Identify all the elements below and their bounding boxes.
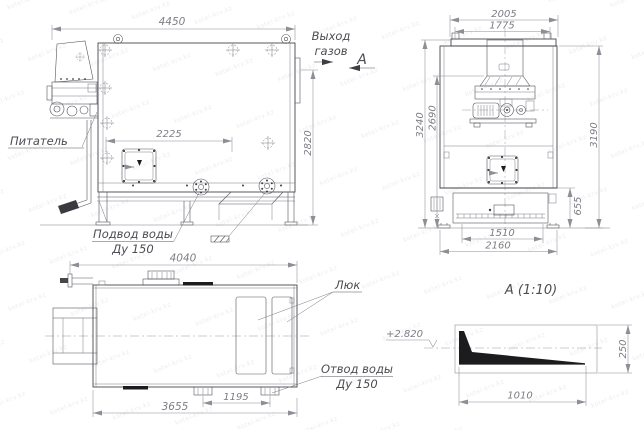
svg-text:655: 655 [573, 196, 584, 215]
svg-text:2160: 2160 [485, 241, 510, 252]
svg-text:250: 250 [618, 339, 629, 358]
svg-text:А: А [356, 52, 367, 68]
svg-text:3655: 3655 [162, 401, 189, 413]
svg-text:2005: 2005 [491, 9, 516, 20]
svg-text:Ду 150: Ду 150 [111, 242, 153, 256]
svg-text:2820: 2820 [303, 130, 314, 155]
technical-drawing-svg: kotel-krv.kz kotel-krv.kz [0, 0, 644, 430]
svg-text:2225: 2225 [156, 129, 181, 140]
svg-text:4450: 4450 [159, 16, 186, 28]
svg-text:2690: 2690 [428, 105, 439, 130]
svg-text:3190: 3190 [589, 122, 600, 147]
detail-title: А (1:10) [504, 283, 557, 298]
svg-text:1510: 1510 [489, 228, 514, 239]
svg-text:Ду 150: Ду 150 [335, 377, 377, 391]
drawing-canvas: kotel-krv.kz kotel-krv.kz [0, 0, 644, 430]
gas-outlet-label: Выход газов [312, 29, 351, 62]
svg-text:Люк: Люк [334, 278, 360, 292]
svg-text:3240: 3240 [415, 112, 426, 137]
svg-text:1010: 1010 [507, 391, 532, 402]
svg-text:+2.820: +2.820 [386, 329, 423, 340]
svg-text:газов: газов [314, 44, 347, 58]
svg-text:Выход: Выход [312, 29, 351, 43]
svg-text:1775: 1775 [489, 21, 514, 32]
svg-text:Подвод воды: Подвод воды [93, 227, 173, 241]
svg-text:Отвод воды: Отвод воды [321, 362, 393, 376]
svg-text:4040: 4040 [170, 253, 197, 265]
feeder-label: Питатель [10, 134, 68, 148]
svg-text:1195: 1195 [223, 392, 248, 403]
